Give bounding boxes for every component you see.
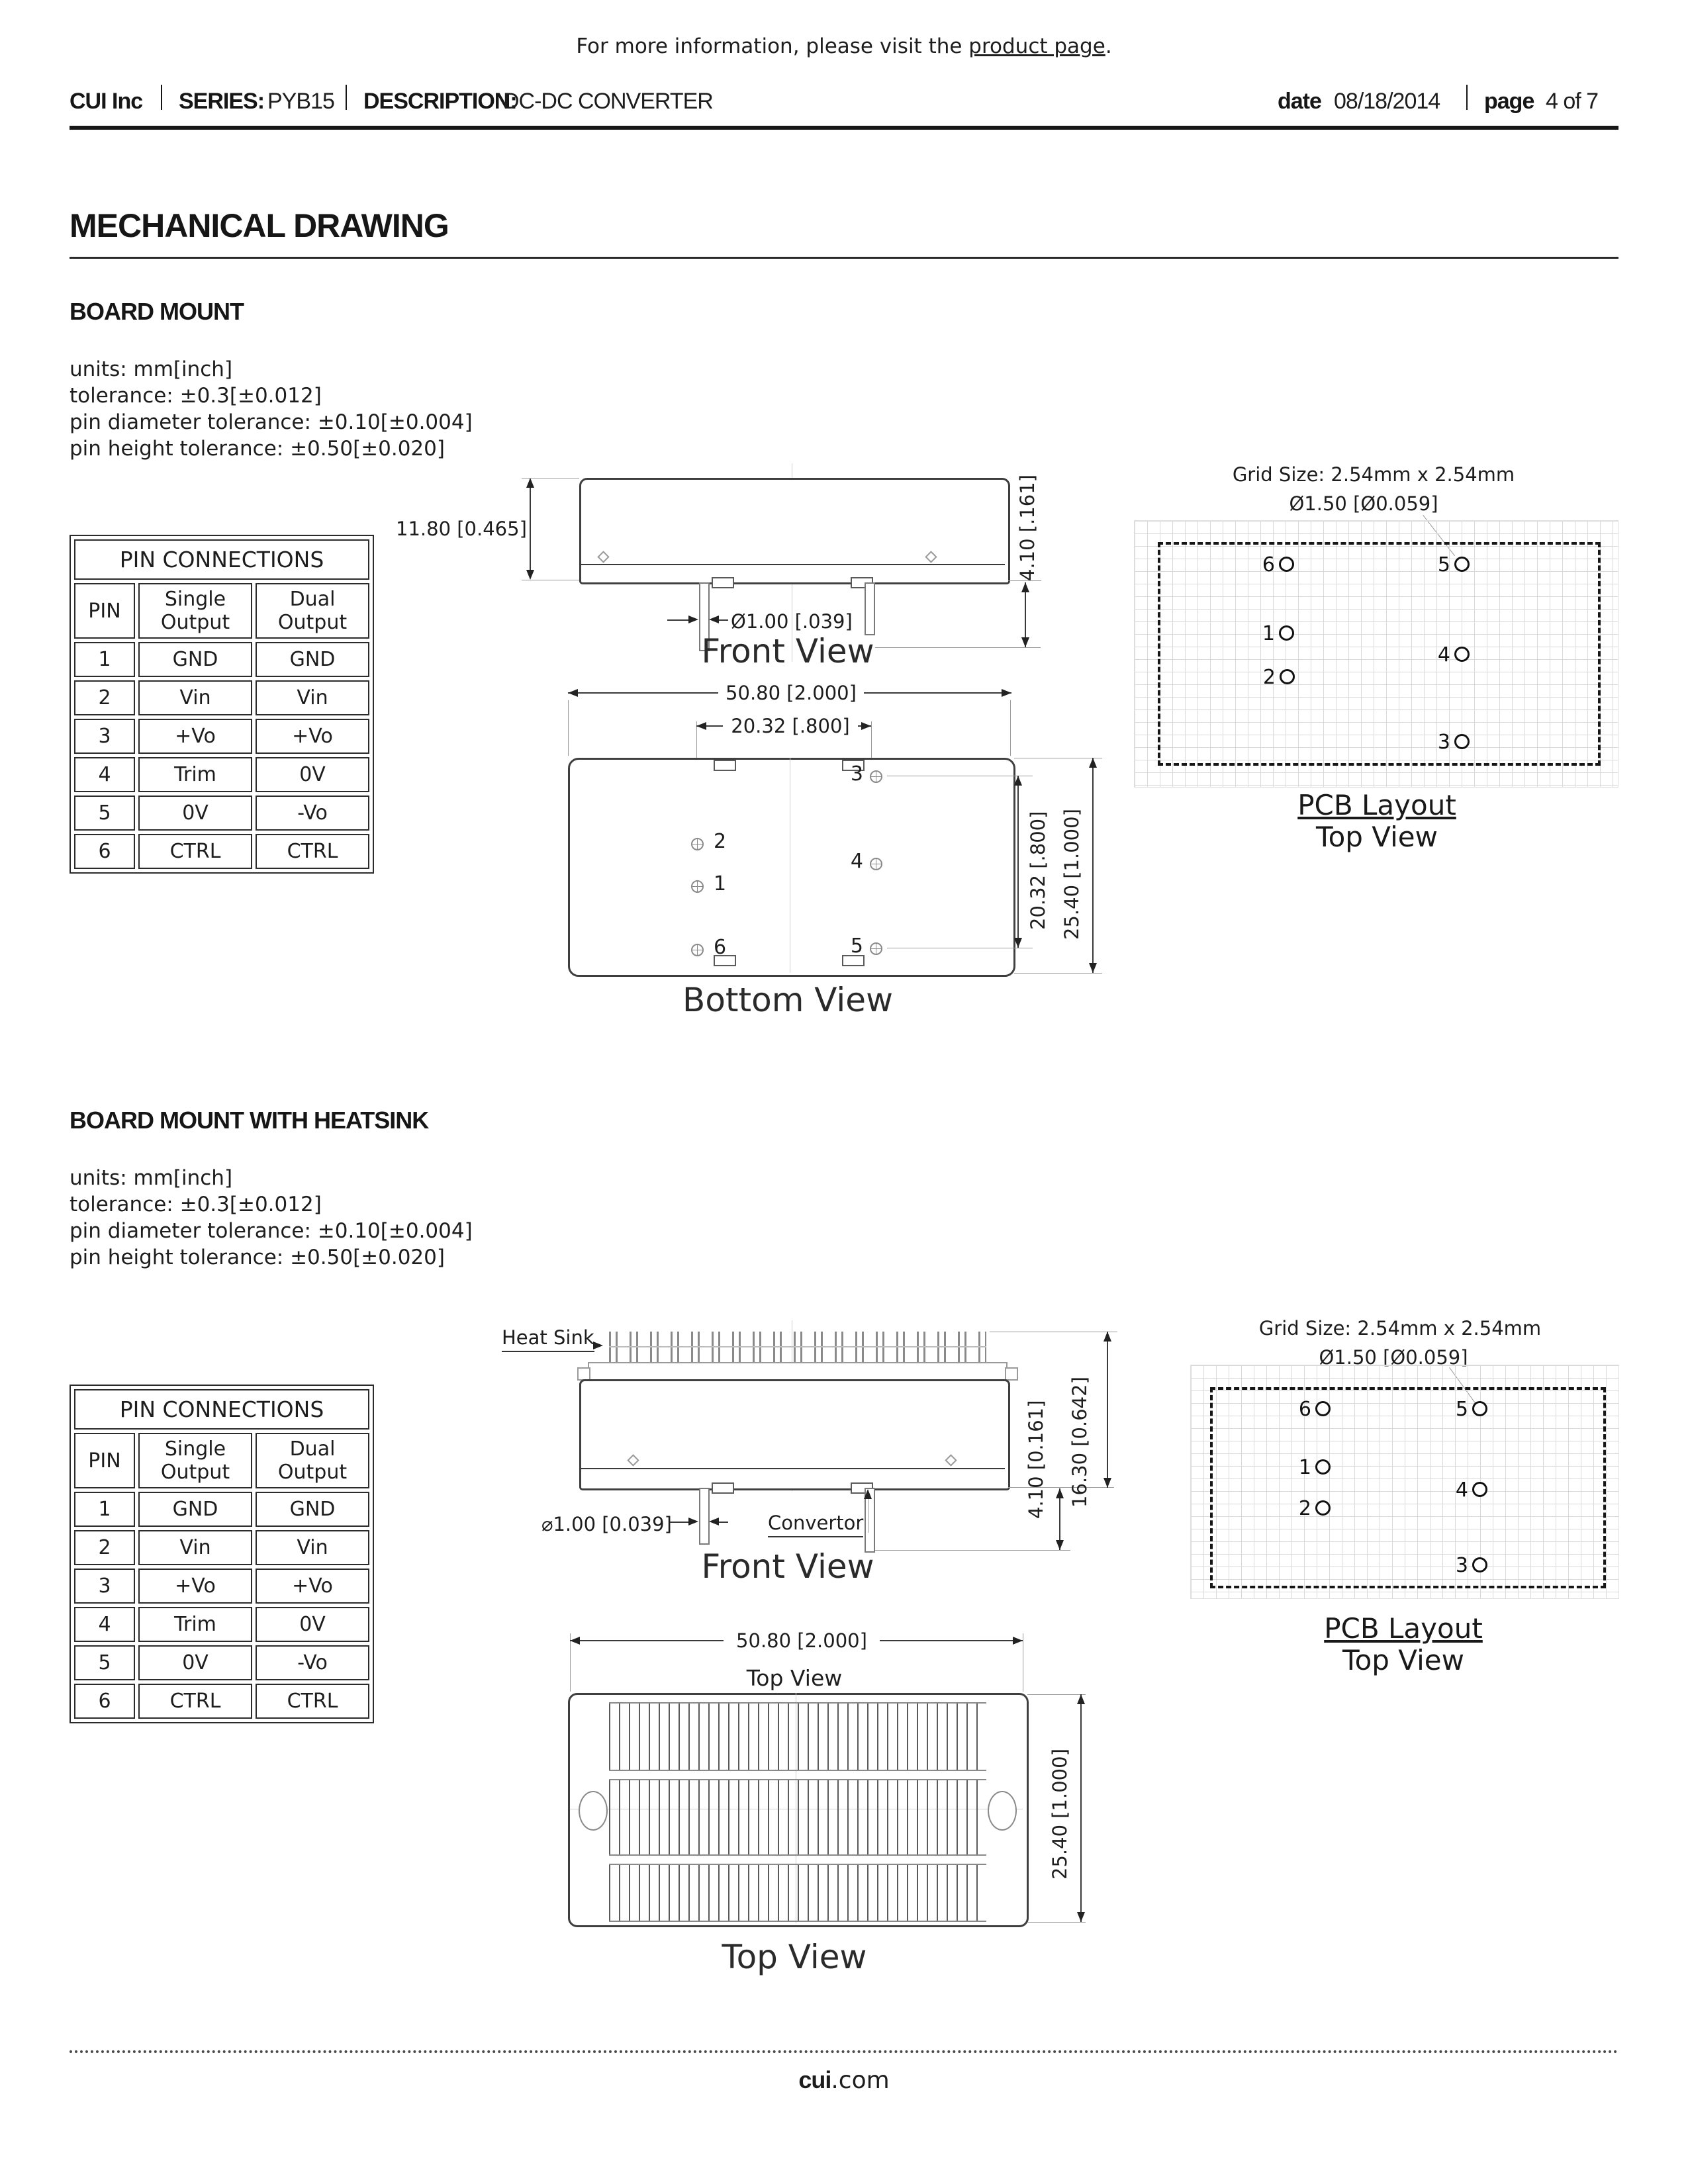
info-prefix: For more information, please visit the (576, 34, 968, 58)
mounting-hole (988, 1791, 1017, 1831)
pin-lead (699, 1488, 710, 1545)
cell: 2 (74, 1530, 135, 1565)
module-outline-dashed (1210, 1387, 1606, 1588)
pin-hole (691, 838, 704, 850)
cell: 5 (74, 1645, 135, 1680)
date-value: 08/18/2014 (1334, 89, 1440, 114)
bottom-tab (712, 577, 734, 588)
table-row: 6 CTRL CTRL (74, 1684, 369, 1719)
pcb-pin-number: 5 (1447, 1398, 1468, 1421)
module-outline-dashed (1158, 542, 1601, 766)
centerline (790, 758, 790, 973)
flange-line (581, 1468, 1005, 1469)
extension-line (522, 580, 579, 580)
heatsink-base (588, 1362, 1008, 1381)
page-label: page (1484, 89, 1534, 114)
note-line: pin height tolerance: ±0.50[±0.020] (70, 1246, 445, 1269)
datasheet-page: For more information, please visit the p… (0, 0, 1688, 2184)
flange-line (581, 564, 1005, 565)
converter-body-front-view (579, 1379, 1010, 1490)
extension-line (1010, 700, 1011, 756)
date-label: date (1278, 89, 1321, 114)
pin-table-col-pin: PIN (74, 1433, 135, 1488)
pcb-pin-number: 5 (1429, 553, 1450, 576)
page-value: 4 of 7 (1546, 89, 1598, 114)
extension-line (887, 948, 1033, 948)
cell: 4 (74, 1607, 135, 1642)
arrow-right-icon (593, 1342, 603, 1349)
note-line: pin diameter tolerance: ±0.10[±0.004] (70, 410, 473, 434)
cell: +Vo (256, 719, 369, 754)
note-line: pin height tolerance: ±0.50[±0.020] (70, 437, 445, 461)
separator (161, 85, 162, 110)
pin-table-title: PIN CONNECTIONS (74, 539, 369, 580)
pcb-top-view-caption: Top View (1248, 821, 1506, 853)
pin-table-col-dual: Dual Output (256, 1433, 369, 1488)
table-row: 2 Vin Vin (74, 680, 369, 715)
arrow-right-icon (861, 722, 871, 730)
dim-pin-length: 4.10 [0.161] (1025, 1387, 1047, 1519)
pin-table-title: PIN CONNECTIONS (74, 1389, 369, 1430)
pin-hole (691, 880, 704, 893)
pin-hole (870, 770, 882, 783)
pin-number: 4 (842, 850, 863, 873)
bottom-view-caption: Bottom View (642, 981, 933, 1019)
pin-table-col-pin: PIN (74, 583, 135, 639)
leader-line (719, 1522, 728, 1523)
note-line: units: mm[inch] (70, 1166, 232, 1190)
arrow-down-icon (1103, 1478, 1111, 1488)
arrow-down-icon (1056, 1540, 1064, 1550)
extension-line (1023, 1633, 1023, 1692)
note-line: pin diameter tolerance: ±0.10[±0.004] (70, 1219, 473, 1243)
cell: Vin (256, 680, 369, 715)
dim-pitch-horizontal: 20.32 [.800] (723, 715, 858, 737)
pin-number: 6 (714, 936, 735, 959)
converter-body-bottom-view (568, 758, 1015, 977)
leader-line (868, 1497, 868, 1533)
arrow-right-icon (688, 1518, 698, 1525)
pcb-hole (1315, 1500, 1331, 1516)
company-name: CUI Inc (70, 89, 142, 114)
page-title: MECHANICAL DRAWING (70, 206, 449, 245)
dim-pin-length: 4.10 [.161] (1016, 462, 1039, 581)
pin-hole (691, 944, 704, 956)
grid-size-label: Grid Size: 2.54mm x 2.54mm (1188, 463, 1559, 486)
cell: +Vo (138, 719, 252, 754)
separator (346, 85, 347, 110)
grid-size-label: Grid Size: 2.54mm x 2.54mm (1215, 1317, 1585, 1340)
front-view-caption: Front View (655, 1547, 920, 1586)
arrow-left-icon (709, 1518, 719, 1525)
header-rule (70, 126, 1618, 130)
cell: 0V (138, 1645, 252, 1680)
top-tab (714, 760, 736, 771)
arrow-down-icon (526, 570, 534, 580)
cell: CTRL (256, 834, 369, 869)
description-value: DC-DC CONVERTER (503, 89, 713, 114)
arrow-up-icon (526, 478, 534, 488)
table-row: 6 CTRL CTRL (74, 834, 369, 869)
arrow-up-icon (1103, 1332, 1111, 1342)
dimension-line (1092, 758, 1094, 973)
dim-width: 50.80 [2.000] (724, 1629, 880, 1652)
cell: 1 (74, 1492, 135, 1527)
dim-depth: 25.40 [1.000] (1060, 797, 1083, 940)
pcb-hole (1454, 647, 1470, 662)
extension-line (1008, 580, 1041, 581)
cell: 5 (74, 796, 135, 831)
hole-diameter-label: Ø1.50 [Ø0.059] (1225, 492, 1503, 515)
arrow-up-icon (1089, 758, 1097, 768)
cell: Vin (256, 1530, 369, 1565)
cell: +Vo (256, 1569, 369, 1604)
cell: GND (138, 642, 252, 677)
dim-height: 11.80 [0.465] (396, 518, 518, 540)
converter-body-front-view (579, 478, 1010, 584)
title-rule (70, 257, 1618, 259)
heatsink-fin-band (609, 1864, 986, 1922)
pin-table-col-single: Single Output (138, 1433, 252, 1488)
dim-depth: 25.40 [1.000] (1049, 1737, 1071, 1880)
dim-pin-diameter: Ø1.00 [.039] (731, 610, 853, 633)
cell: 1 (74, 642, 135, 677)
cell: Trim (138, 1607, 252, 1642)
dim-total-height: 16.30 [0.642] (1068, 1362, 1091, 1508)
info-line: For more information, please visit the p… (0, 34, 1688, 58)
pcb-pin-number: 6 (1254, 553, 1275, 576)
pcb-hole (1454, 734, 1470, 749)
heatsink-base-end (577, 1367, 590, 1381)
pin-number: 1 (714, 872, 735, 895)
cell: CTRL (256, 1684, 369, 1719)
arrow-down-icon (1021, 637, 1029, 647)
cell: 0V (256, 757, 369, 792)
pcb-hole (1454, 557, 1470, 572)
pin-hole (870, 858, 882, 870)
pin-table-col-single: Single Output (138, 583, 252, 639)
extension-line (1027, 1922, 1086, 1923)
extension-line (990, 1332, 1117, 1332)
footer-brand-rest: .com (831, 2067, 889, 2094)
note-line: units: mm[inch] (70, 357, 232, 381)
arrow-down-icon (1014, 938, 1022, 948)
heatsink-base-end (1005, 1367, 1018, 1381)
cell: -Vo (256, 1645, 369, 1680)
dimension-line (530, 482, 531, 577)
separator (1466, 85, 1468, 110)
pin-hole (870, 942, 882, 955)
extension-line (1008, 1487, 1114, 1488)
pcb-hole (1279, 557, 1294, 572)
arrow-up-icon (1021, 582, 1029, 592)
product-page-link[interactable]: product page (968, 34, 1105, 58)
arrow-right-icon (688, 615, 698, 623)
pcb-pin-number: 2 (1290, 1497, 1311, 1520)
table-row: 3 +Vo +Vo (74, 1569, 369, 1604)
arrow-up-icon (1077, 1694, 1085, 1704)
pin-number: 5 (842, 934, 863, 958)
pcb-pin-number: 4 (1447, 1479, 1468, 1502)
table-row: 5 0V -Vo (74, 796, 369, 831)
dimension-line (1017, 776, 1019, 948)
bottom-tab (712, 1482, 734, 1494)
table-row: 4 Trim 0V (74, 1607, 369, 1642)
pcb-hole (1472, 1482, 1487, 1497)
description-label: DESCRIPTION: (363, 89, 517, 114)
heatsink-fin-band (609, 1779, 986, 1856)
pin-connections-table: PIN CONNECTIONS PIN Single Output Dual O… (70, 535, 374, 874)
pin-table-col-dual: Dual Output (256, 583, 369, 639)
extension-line (887, 776, 1033, 776)
arrow-right-icon (1013, 1637, 1023, 1645)
section-heading-heatsink: BOARD MOUNT WITH HEATSINK (70, 1107, 428, 1134)
pcb-pin-number: 3 (1447, 1554, 1468, 1577)
pcb-hole (1472, 1401, 1487, 1416)
footer-brand-bold: cui (798, 2066, 831, 2093)
footer-rule (70, 2050, 1618, 2053)
arrow-right-icon (1002, 689, 1011, 697)
arrow-down-icon (1089, 963, 1097, 973)
pcb-pin-number: 4 (1429, 643, 1450, 666)
dimension-line (1080, 1694, 1082, 1922)
cell: -Vo (256, 796, 369, 831)
arrow-up-icon (1056, 1488, 1064, 1498)
top-view-label: Top View (702, 1665, 887, 1691)
cell: 4 (74, 757, 135, 792)
extension-line (568, 700, 569, 756)
extension-line (1014, 973, 1102, 974)
leader-line (670, 1522, 688, 1523)
top-view-caption: Top View (662, 1938, 927, 1976)
convertor-label: Convertor (768, 1512, 863, 1537)
pin-connections-table: PIN CONNECTIONS PIN Single Output Dual O… (70, 1385, 374, 1723)
pcb-pin-number: 1 (1254, 622, 1275, 645)
arrow-left-icon (709, 615, 719, 623)
arrow-left-icon (568, 689, 578, 697)
cell: Vin (138, 1530, 252, 1565)
series-value: PYB15 (267, 89, 334, 114)
fin-crossbar (609, 1346, 986, 1347)
section-heading-board-mount: BOARD MOUNT (70, 298, 244, 326)
pcb-pin-number: 3 (1429, 731, 1450, 754)
table-row: 3 +Vo +Vo (74, 719, 369, 754)
info-suffix: . (1105, 34, 1112, 58)
table-row: 1 GND GND (74, 642, 369, 677)
table-row: 2 Vin Vin (74, 1530, 369, 1565)
table-row: 4 Trim 0V (74, 757, 369, 792)
dim-pitch-vertical: 20.32 [.800] (1027, 804, 1049, 930)
table-row: 1 GND GND (74, 1492, 369, 1527)
note-line: tolerance: ±0.3[±0.012] (70, 384, 322, 408)
dim-pin-diameter: ⌀1.00 [0.039] (541, 1513, 666, 1535)
pcb-hole (1315, 1401, 1331, 1416)
dim-width: 50.80 [2.000] (718, 682, 864, 704)
pcb-pin-number: 6 (1290, 1398, 1311, 1421)
cell: 3 (74, 719, 135, 754)
pcb-hole (1472, 1557, 1487, 1572)
pin-lead (865, 582, 875, 635)
pcb-pin-number: 2 (1254, 666, 1276, 689)
cell: 6 (74, 834, 135, 869)
cell: Trim (138, 757, 252, 792)
pcb-hole (1315, 1459, 1331, 1475)
cell: Vin (138, 680, 252, 715)
front-view-caption: Front View (655, 632, 920, 670)
heatsink-fin-band (609, 1702, 986, 1771)
cell: GND (256, 1492, 369, 1527)
arrow-up-icon (864, 1489, 872, 1499)
table-row: 5 0V -Vo (74, 1645, 369, 1680)
heat-sink-label: Heat Sink (502, 1326, 594, 1352)
pcb-pin-number: 1 (1290, 1456, 1311, 1479)
cell: CTRL (138, 1684, 252, 1719)
cell: GND (256, 642, 369, 677)
cell: 0V (138, 796, 252, 831)
cell: 2 (74, 680, 135, 715)
arrow-up-icon (1014, 776, 1022, 786)
arrow-left-icon (570, 1637, 580, 1645)
cell: 6 (74, 1684, 135, 1719)
arrow-down-icon (1077, 1912, 1085, 1922)
pcb-hole (1280, 669, 1295, 684)
leader-line (667, 619, 688, 621)
pcb-layout-caption: PCB Layout (1248, 789, 1506, 821)
cell: GND (138, 1492, 252, 1527)
dimension-line (1107, 1332, 1108, 1488)
pcb-top-view-caption: Top View (1274, 1644, 1532, 1676)
cell: 3 (74, 1569, 135, 1604)
arrow-left-icon (696, 722, 706, 730)
cell: +Vo (138, 1569, 252, 1604)
pcb-hole (1279, 625, 1294, 641)
footer-brand: cui.com (0, 2066, 1688, 2094)
series-label: SERIES: (179, 89, 264, 114)
mounting-hole (579, 1791, 608, 1831)
cell: CTRL (138, 834, 252, 869)
cell: 0V (256, 1607, 369, 1642)
pin-number: 2 (714, 830, 735, 853)
pcb-layout-caption: PCB Layout (1274, 1612, 1532, 1645)
leader-line (719, 619, 728, 621)
note-line: tolerance: ±0.3[±0.012] (70, 1193, 322, 1216)
pin-number: 3 (842, 762, 863, 786)
